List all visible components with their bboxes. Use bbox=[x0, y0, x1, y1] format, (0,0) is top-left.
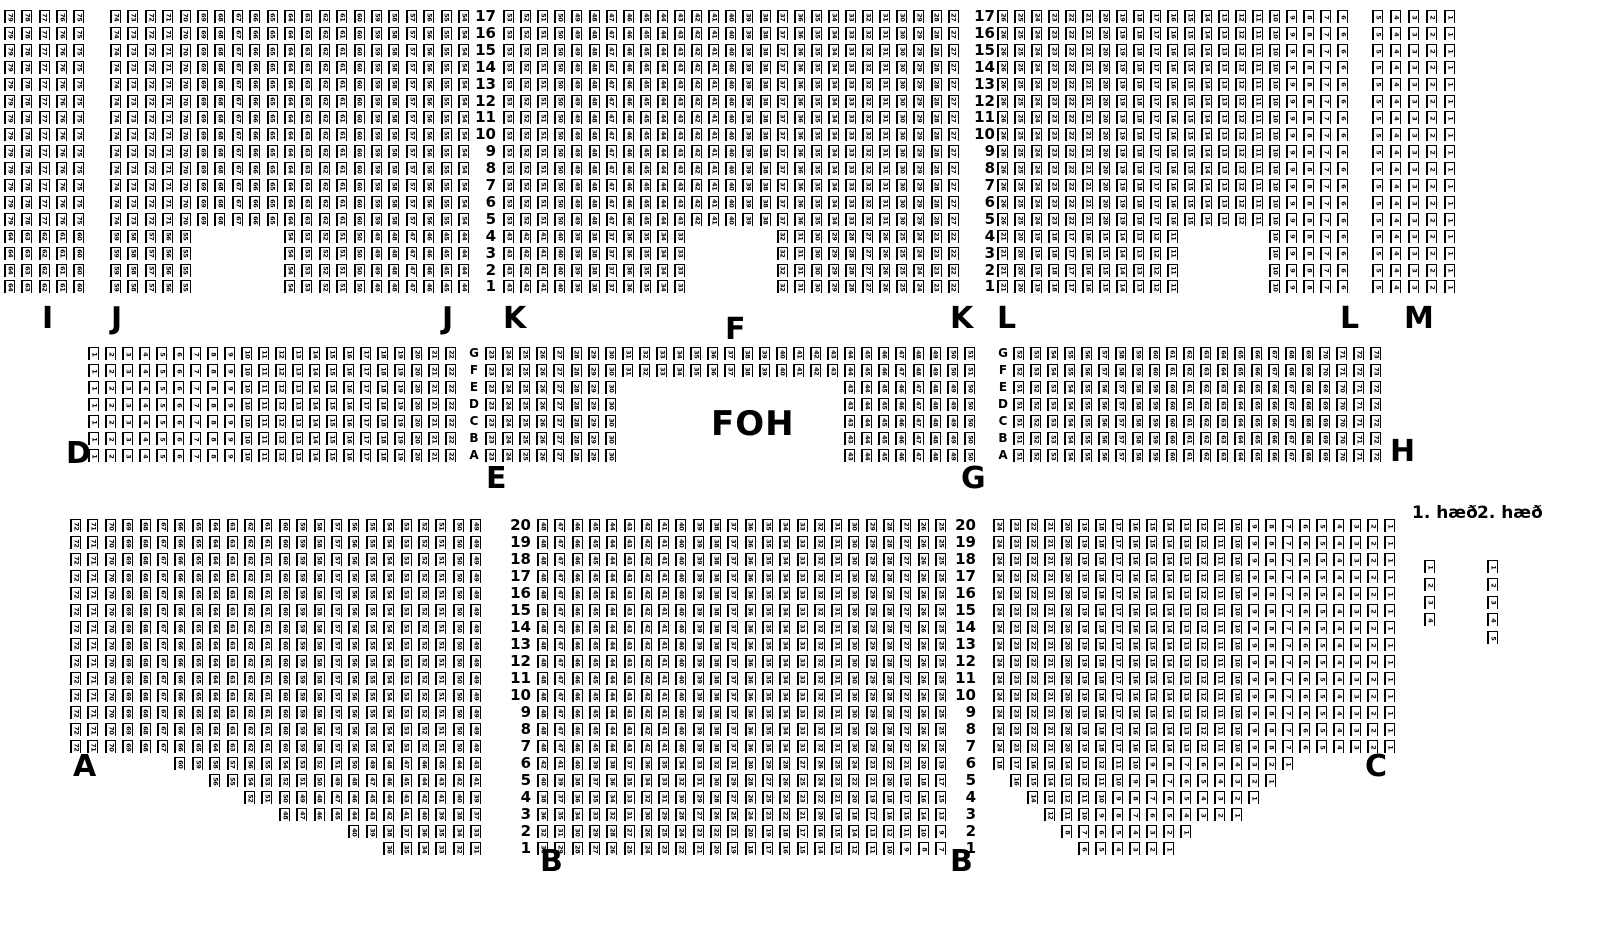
seat: 63 bbox=[301, 179, 312, 192]
seat-number: 55 bbox=[182, 266, 189, 274]
seat-number: 39 bbox=[473, 794, 480, 802]
seat-number: 72 bbox=[73, 607, 80, 615]
seat: 68 bbox=[214, 128, 225, 141]
seat-number: 64 bbox=[212, 556, 219, 564]
seat-number: 8 bbox=[1306, 83, 1313, 87]
seat: 50 bbox=[554, 111, 565, 124]
seat: 44 bbox=[657, 196, 668, 209]
seat: 36 bbox=[794, 128, 805, 141]
seat: 37 bbox=[727, 638, 738, 651]
seat: 27 bbox=[948, 10, 959, 23]
seat: 1 bbox=[1444, 213, 1455, 226]
seat: 46 bbox=[623, 179, 634, 192]
seat: 57 bbox=[1115, 398, 1126, 411]
seat: 58 bbox=[388, 196, 399, 209]
seat: 34 bbox=[657, 230, 668, 243]
seat: 30 bbox=[896, 61, 907, 74]
seat: 71 bbox=[87, 689, 98, 702]
seat: 7 bbox=[190, 449, 201, 462]
seat-number: 58 bbox=[1135, 418, 1142, 426]
seat: 53 bbox=[503, 44, 514, 57]
seat-number: 64 bbox=[1220, 367, 1227, 375]
seat-number: 46 bbox=[574, 522, 581, 530]
seat: 39 bbox=[693, 723, 704, 736]
seat-number: 72 bbox=[148, 216, 155, 224]
seat: 61 bbox=[1166, 347, 1177, 360]
seat-number: 26 bbox=[539, 452, 546, 460]
seat-number: 2 bbox=[108, 352, 115, 356]
seat: 15 bbox=[326, 449, 337, 462]
seat: 11 bbox=[258, 347, 269, 360]
seat-number: 10 bbox=[244, 435, 251, 443]
seat: 66 bbox=[1268, 432, 1279, 445]
seat: 10 bbox=[1269, 27, 1280, 40]
seat: 53 bbox=[401, 672, 412, 685]
seat: 5 bbox=[1372, 78, 1383, 91]
seat: 29 bbox=[913, 44, 924, 57]
seat: 62 bbox=[244, 655, 255, 668]
seat: 51 bbox=[435, 519, 446, 532]
seat: 39 bbox=[571, 280, 582, 293]
seat-number: 51 bbox=[540, 114, 547, 122]
seat-number: 72 bbox=[73, 590, 80, 598]
seat-number: 49 bbox=[574, 97, 581, 105]
seat: 6 bbox=[1337, 111, 1348, 124]
seat-number: 40 bbox=[728, 199, 735, 207]
seat: 41 bbox=[708, 95, 719, 108]
seat-number: 43 bbox=[847, 452, 854, 460]
seat: 23 bbox=[931, 264, 942, 277]
seat: 48 bbox=[388, 230, 399, 243]
seat: 2 bbox=[1426, 280, 1437, 293]
seat-number: 53 bbox=[506, 47, 513, 55]
seat-number: 60 bbox=[177, 760, 184, 768]
seat: 35 bbox=[640, 280, 651, 293]
seat-number: 27 bbox=[903, 709, 910, 717]
seat: 9 bbox=[224, 347, 235, 360]
seat-number: 34 bbox=[660, 233, 667, 241]
seat: 54 bbox=[284, 230, 295, 243]
seat-number: 42 bbox=[644, 692, 651, 700]
seat: 48 bbox=[589, 196, 600, 209]
seat: 51 bbox=[537, 44, 548, 57]
seat-number: 5 bbox=[1375, 268, 1382, 272]
seat: 77 bbox=[39, 44, 50, 57]
seat-number: 3 bbox=[1411, 99, 1418, 103]
seat: 14 bbox=[309, 432, 320, 445]
seat-number: 21 bbox=[1085, 30, 1092, 38]
seat: 29 bbox=[866, 672, 877, 685]
seat-number: 52 bbox=[322, 266, 329, 274]
seat-number: 31 bbox=[834, 539, 841, 547]
seat-number: 59 bbox=[374, 13, 381, 21]
seat-number: 26 bbox=[920, 675, 927, 683]
seat-number: 30 bbox=[899, 13, 906, 21]
seat-number: 41 bbox=[661, 743, 668, 751]
seat: 14 bbox=[1116, 280, 1127, 293]
seat-number: 6 bbox=[176, 437, 183, 441]
seat: 15 bbox=[1184, 10, 1195, 23]
seat: 60 bbox=[1166, 381, 1177, 394]
seat: 34 bbox=[779, 672, 790, 685]
seat: 49 bbox=[470, 740, 481, 753]
seat-number: 51 bbox=[540, 13, 547, 21]
seat-number: 50 bbox=[456, 539, 463, 547]
seat-number: 20 bbox=[1102, 148, 1109, 156]
seat: 35 bbox=[762, 638, 773, 651]
seat-number: 44 bbox=[660, 30, 667, 38]
seat: 47 bbox=[606, 196, 617, 209]
seat-number: 43 bbox=[506, 283, 513, 291]
floor-legend-1: 1. hæð bbox=[1412, 505, 1478, 522]
seat: 41 bbox=[708, 145, 719, 158]
seat-number: 70 bbox=[182, 216, 189, 224]
seat-number: 72 bbox=[1373, 384, 1380, 392]
seat: 61 bbox=[336, 27, 347, 40]
seat: 53 bbox=[503, 145, 514, 158]
seat: 59 bbox=[296, 723, 307, 736]
seat-number: 28 bbox=[848, 283, 855, 291]
seat-number: 77 bbox=[41, 97, 48, 105]
seat: 11 bbox=[258, 432, 269, 445]
seat-number: 42 bbox=[694, 199, 701, 207]
seat: 68 bbox=[1285, 364, 1296, 377]
seat-number: 57 bbox=[334, 522, 341, 530]
seat: 44 bbox=[458, 280, 469, 293]
seat: 55 bbox=[366, 587, 377, 600]
seat-number: 58 bbox=[391, 13, 398, 21]
seat-number: 70 bbox=[108, 590, 115, 598]
seat: 43 bbox=[674, 61, 685, 74]
seat-number: 34 bbox=[782, 709, 789, 717]
seat-number: 58 bbox=[1135, 384, 1142, 392]
seat: 60 bbox=[354, 162, 365, 175]
seat: 63 bbox=[227, 536, 238, 549]
seat-number: 51 bbox=[540, 64, 547, 72]
seat-number: 54 bbox=[461, 114, 468, 122]
seat: 72 bbox=[145, 44, 156, 57]
seat: 41 bbox=[708, 179, 719, 192]
seat-number: 71 bbox=[90, 556, 97, 564]
seat: 38 bbox=[710, 672, 721, 685]
seat-number: 41 bbox=[661, 573, 668, 581]
seat-number: 43 bbox=[626, 522, 633, 530]
seat: 66 bbox=[249, 44, 260, 57]
seat-number: 22 bbox=[1068, 64, 1075, 72]
seat-number: 69 bbox=[125, 556, 132, 564]
seat: 27 bbox=[862, 264, 873, 277]
seat: 25 bbox=[935, 689, 946, 702]
seat-number: 18 bbox=[1136, 131, 1143, 139]
seat-number: 71 bbox=[1356, 384, 1363, 392]
seat: 34 bbox=[779, 689, 790, 702]
seat-number: 33 bbox=[848, 97, 855, 105]
seat-number: 70 bbox=[108, 624, 115, 632]
seat: 17 bbox=[1150, 95, 1161, 108]
seat-number: 34 bbox=[782, 539, 789, 547]
seat: 35 bbox=[762, 553, 773, 566]
seat: 41 bbox=[658, 621, 669, 634]
seat: 54 bbox=[458, 145, 469, 158]
seat-number: 9 bbox=[1289, 184, 1296, 188]
seat-number: 48 bbox=[591, 114, 598, 122]
seat-number: 25 bbox=[1017, 131, 1024, 139]
seat: 23 bbox=[1048, 213, 1059, 226]
seat-number: 54 bbox=[461, 80, 468, 88]
seat-number: 64 bbox=[212, 709, 219, 717]
seat-number: 18 bbox=[1051, 249, 1058, 257]
seat: 43 bbox=[624, 672, 635, 685]
seat-number: 45 bbox=[643, 47, 650, 55]
seat: 45 bbox=[878, 432, 889, 445]
seat-number: 39 bbox=[745, 64, 752, 72]
seat-number: 25 bbox=[1017, 148, 1024, 156]
seat: 5 bbox=[1372, 95, 1383, 108]
seat: 67 bbox=[232, 95, 243, 108]
seat-number: 13 bbox=[1221, 165, 1228, 173]
seat: 46 bbox=[895, 398, 906, 411]
seat-number: 50 bbox=[557, 80, 564, 88]
seat-number: 41 bbox=[711, 165, 718, 173]
seat-number: 39 bbox=[745, 148, 752, 156]
seat-number: 19 bbox=[1119, 131, 1126, 139]
seat: 38 bbox=[742, 364, 753, 377]
seat-number: 54 bbox=[461, 13, 468, 21]
seat-number: 60 bbox=[356, 47, 363, 55]
seat-number: 17 bbox=[1153, 131, 1160, 139]
seat-number: 37 bbox=[779, 148, 786, 156]
seat-number: 57 bbox=[409, 97, 416, 105]
seat: 70 bbox=[180, 95, 191, 108]
seat: 7 bbox=[1320, 61, 1331, 74]
seat: 36 bbox=[641, 757, 652, 770]
seat-number: 64 bbox=[287, 97, 294, 105]
seat: 19 bbox=[394, 398, 405, 411]
seat: 53 bbox=[1047, 432, 1058, 445]
seat: 63 bbox=[227, 587, 238, 600]
seat: 33 bbox=[845, 213, 856, 226]
seat: 25 bbox=[1014, 111, 1025, 124]
seat: 60 bbox=[279, 536, 290, 549]
seat: 54 bbox=[458, 44, 469, 57]
seat: 52 bbox=[520, 213, 531, 226]
seat: 23 bbox=[1048, 44, 1059, 57]
seat: 61 bbox=[261, 706, 272, 719]
seat: 30 bbox=[896, 95, 907, 108]
seat: 22 bbox=[1065, 111, 1076, 124]
seat-number: 34 bbox=[831, 165, 838, 173]
seat-number: 78 bbox=[24, 47, 31, 55]
seat: 31 bbox=[831, 655, 842, 668]
seat-number: 9 bbox=[1289, 66, 1296, 70]
seat: 30 bbox=[896, 27, 907, 40]
seat: 32 bbox=[814, 587, 825, 600]
seat: 35 bbox=[762, 723, 773, 736]
seat: 57 bbox=[331, 519, 342, 532]
seat-number: 10 bbox=[1272, 30, 1279, 38]
seat-number: 16 bbox=[346, 435, 353, 443]
seat: 6 bbox=[1337, 280, 1348, 293]
seat-number: 53 bbox=[506, 148, 513, 156]
seat: 50 bbox=[964, 398, 975, 411]
seat: 46 bbox=[623, 27, 634, 40]
seat: 36 bbox=[745, 621, 756, 634]
seat-number: 12 bbox=[278, 384, 285, 392]
seat: 5 bbox=[1372, 27, 1383, 40]
seat-number: 27 bbox=[865, 266, 872, 274]
seat-number: 9 bbox=[1289, 15, 1296, 19]
seat-number: 70 bbox=[182, 13, 189, 21]
seat: 1 bbox=[1444, 196, 1455, 209]
seat: 55 bbox=[366, 672, 377, 685]
seat-number: 10 bbox=[244, 384, 251, 392]
seat-number: 76 bbox=[59, 131, 66, 139]
seat: 78 bbox=[21, 179, 32, 192]
seat-number: 60 bbox=[76, 233, 83, 241]
seat-number: 38 bbox=[713, 709, 720, 717]
seat: 8 bbox=[1303, 145, 1314, 158]
seat-number: 37 bbox=[779, 30, 786, 38]
seat-number: 65 bbox=[269, 216, 276, 224]
seat: 36 bbox=[794, 196, 805, 209]
seat-number: 55 bbox=[443, 216, 450, 224]
seat: 28 bbox=[779, 757, 790, 770]
seat-number: 46 bbox=[316, 811, 323, 819]
seat-number: 37 bbox=[608, 266, 615, 274]
seat: 74 bbox=[110, 179, 121, 192]
seat: 59 bbox=[371, 78, 382, 91]
seat-number: 58 bbox=[1135, 401, 1142, 409]
seat: 51 bbox=[435, 706, 446, 719]
seat-number: 15 bbox=[1102, 283, 1109, 291]
seat-number: 55 bbox=[264, 760, 271, 768]
seat-number: 25 bbox=[1017, 30, 1024, 38]
seat-number: 6 bbox=[1340, 268, 1347, 272]
seat-number: 2 bbox=[108, 454, 115, 458]
seat: 43 bbox=[503, 247, 514, 260]
seat-number: 63 bbox=[229, 522, 236, 530]
seat-number: 14 bbox=[312, 418, 319, 426]
seat: 39 bbox=[742, 213, 753, 226]
seat-number: 62 bbox=[322, 131, 329, 139]
seat: 1 bbox=[1444, 162, 1455, 175]
seat-number: 56 bbox=[351, 556, 358, 564]
seat-number: 63 bbox=[304, 97, 311, 105]
seat: 2 bbox=[1426, 111, 1437, 124]
seat-number: 65 bbox=[195, 675, 202, 683]
seat: 63 bbox=[227, 655, 238, 668]
seat: 3 bbox=[1408, 145, 1419, 158]
seat-number: 4 bbox=[1393, 133, 1400, 137]
seat-number: 18 bbox=[1051, 266, 1058, 274]
seat-number: 64 bbox=[212, 726, 219, 734]
seat: 42 bbox=[641, 655, 652, 668]
seat: 13 bbox=[1133, 230, 1144, 243]
seat: 52 bbox=[418, 621, 429, 634]
seat-number: 29 bbox=[916, 97, 923, 105]
seat: 31 bbox=[831, 570, 842, 583]
seat: 17 bbox=[1065, 264, 1076, 277]
seat-number: 5 bbox=[1375, 83, 1382, 87]
seat-number: 34 bbox=[831, 182, 838, 190]
seat-number: 63 bbox=[229, 556, 236, 564]
seat-number: 76 bbox=[59, 114, 66, 122]
seat-number: 71 bbox=[1356, 435, 1363, 443]
seat-number: 56 bbox=[351, 658, 358, 666]
seat: 66 bbox=[1268, 398, 1279, 411]
seat-number: 14 bbox=[1204, 30, 1211, 38]
seat: 44 bbox=[844, 364, 855, 377]
seat-number: 12 bbox=[1153, 233, 1160, 241]
seat: 1 bbox=[1444, 179, 1455, 192]
seat: 5 bbox=[1372, 230, 1383, 243]
seat: 20 bbox=[411, 364, 422, 377]
seat: 34 bbox=[779, 536, 790, 549]
seat-number: 61 bbox=[264, 743, 271, 751]
seat: 41 bbox=[708, 27, 719, 40]
seat: 25 bbox=[1014, 95, 1025, 108]
seat: 12 bbox=[1150, 280, 1161, 293]
seat-number: 41 bbox=[661, 726, 668, 734]
seat-number: 49 bbox=[574, 64, 581, 72]
seat-number: 53 bbox=[299, 760, 306, 768]
seat: 78 bbox=[21, 145, 32, 158]
seat: 26 bbox=[997, 213, 1008, 226]
seat-number: 13 bbox=[1221, 131, 1228, 139]
seat: 55 bbox=[180, 230, 191, 243]
seat-number: 61 bbox=[1186, 384, 1193, 392]
seat-number: 16 bbox=[1085, 249, 1092, 257]
seat: 5 bbox=[1372, 145, 1383, 158]
seat: 9 bbox=[224, 415, 235, 428]
seat-number: 14 bbox=[1204, 199, 1211, 207]
seat-number: 43 bbox=[626, 658, 633, 666]
seat: 47 bbox=[554, 740, 565, 753]
seat-number: 59 bbox=[299, 709, 306, 717]
seat: 39 bbox=[742, 196, 753, 209]
seat: 29 bbox=[913, 179, 924, 192]
seat-number: 7 bbox=[1323, 133, 1330, 137]
seat: 46 bbox=[623, 162, 634, 175]
seat-number: 69 bbox=[1322, 384, 1329, 392]
seat-number: 49 bbox=[574, 30, 581, 38]
seat: 23 bbox=[1048, 111, 1059, 124]
seat-number: 75 bbox=[76, 199, 83, 207]
seat-number: 46 bbox=[574, 658, 581, 666]
seat: 26 bbox=[997, 111, 1008, 124]
seat: 29 bbox=[913, 95, 924, 108]
seat: 10 bbox=[241, 449, 252, 462]
seat-number: 34 bbox=[831, 47, 838, 55]
seat-number: 47 bbox=[409, 283, 416, 291]
seat-number: 5 bbox=[1375, 184, 1382, 188]
seat: 24 bbox=[1031, 27, 1042, 40]
seat-number: 60 bbox=[356, 165, 363, 173]
seat-number: 70 bbox=[182, 64, 189, 72]
seat: 51 bbox=[435, 672, 446, 685]
seat: 10 bbox=[1269, 61, 1280, 74]
seat-number: 25 bbox=[1017, 80, 1024, 88]
seat: 7 bbox=[1320, 162, 1331, 175]
seat-number: 62 bbox=[322, 165, 329, 173]
seat-number: 39 bbox=[695, 709, 702, 717]
seat: 28 bbox=[845, 230, 856, 243]
seat-number: 34 bbox=[831, 148, 838, 156]
seat: 25 bbox=[831, 757, 842, 770]
seat-number: 44 bbox=[609, 743, 616, 751]
seat-number: 66 bbox=[1254, 367, 1261, 375]
seat: 67 bbox=[157, 519, 168, 532]
